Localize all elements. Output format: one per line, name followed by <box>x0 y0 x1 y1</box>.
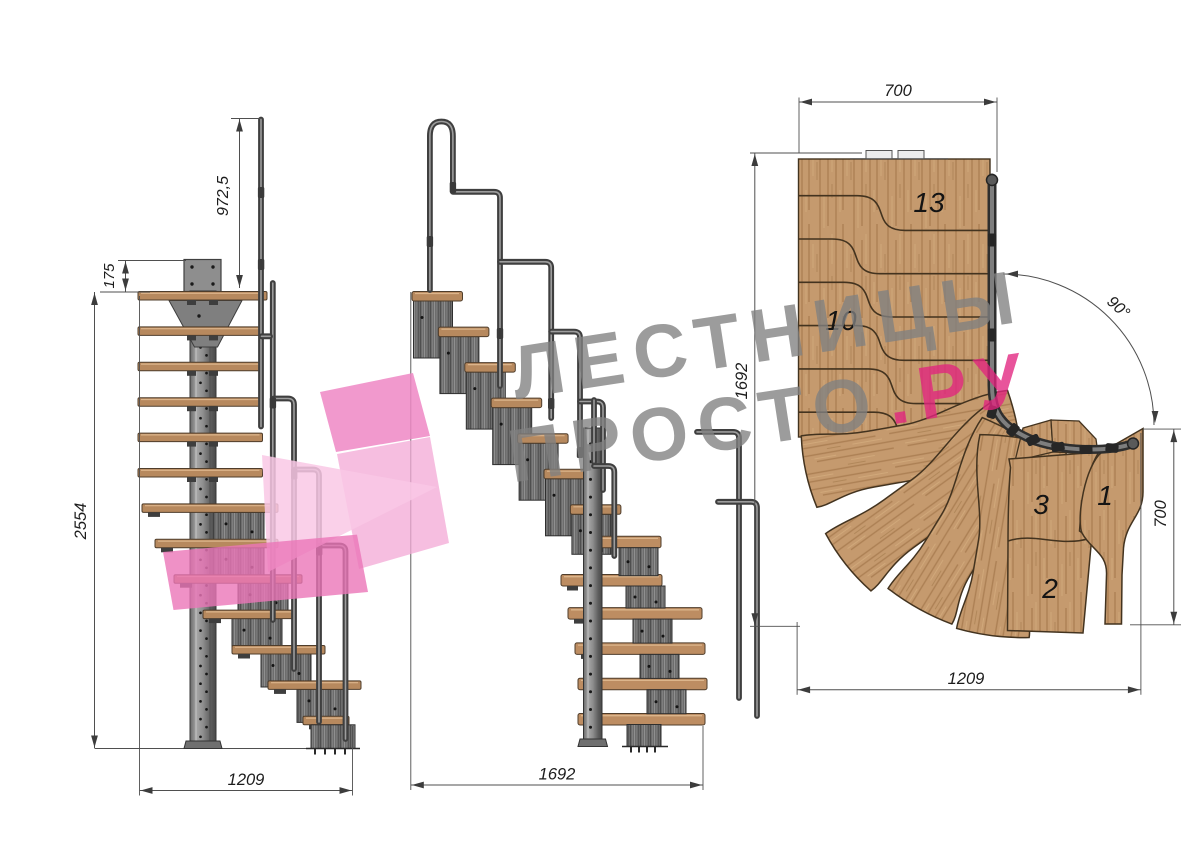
svg-text:13: 13 <box>913 187 945 218</box>
svg-text:700: 700 <box>1152 499 1170 527</box>
svg-text:1: 1 <box>1097 480 1113 511</box>
svg-text:700: 700 <box>884 82 912 100</box>
svg-text:2554: 2554 <box>72 503 90 541</box>
svg-text:1692: 1692 <box>539 766 576 784</box>
svg-text:2: 2 <box>1041 573 1058 604</box>
svg-text:3: 3 <box>1033 489 1049 520</box>
svg-text:972,5: 972,5 <box>215 176 232 216</box>
svg-text:175: 175 <box>101 263 118 289</box>
svg-text:1209: 1209 <box>948 670 985 688</box>
svg-text:1209: 1209 <box>228 771 265 789</box>
